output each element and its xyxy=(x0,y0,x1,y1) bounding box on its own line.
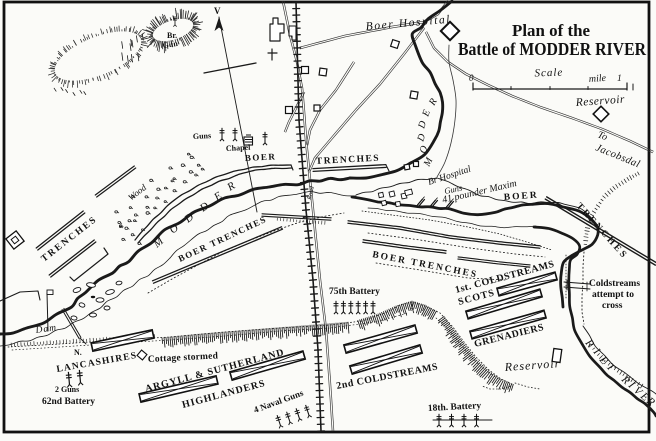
svg-text:0: 0 xyxy=(469,73,474,83)
svg-text:1: 1 xyxy=(617,74,622,84)
svg-text:N.: N. xyxy=(74,348,82,357)
svg-text:Battle of MODDER RIVER: Battle of MODDER RIVER xyxy=(458,39,646,59)
svg-text:Coldstreams: Coldstreams xyxy=(589,279,640,289)
svg-text:75th Battery: 75th Battery xyxy=(329,287,380,297)
svg-text:Chapel: Chapel xyxy=(226,143,252,153)
svg-text:attempt to: attempt to xyxy=(592,290,634,300)
svg-text:2 Guns: 2 Guns xyxy=(55,385,79,394)
svg-text:Scale: Scale xyxy=(534,67,563,80)
svg-text:Plan of the: Plan of the xyxy=(512,21,590,40)
svg-text:BOER: BOER xyxy=(245,151,277,163)
svg-text:V: V xyxy=(214,6,221,16)
svg-text:62nd Battery: 62nd Battery xyxy=(42,397,95,407)
svg-text:mile: mile xyxy=(588,73,607,85)
svg-text:cross: cross xyxy=(602,301,623,311)
svg-text:Guns: Guns xyxy=(193,131,212,141)
